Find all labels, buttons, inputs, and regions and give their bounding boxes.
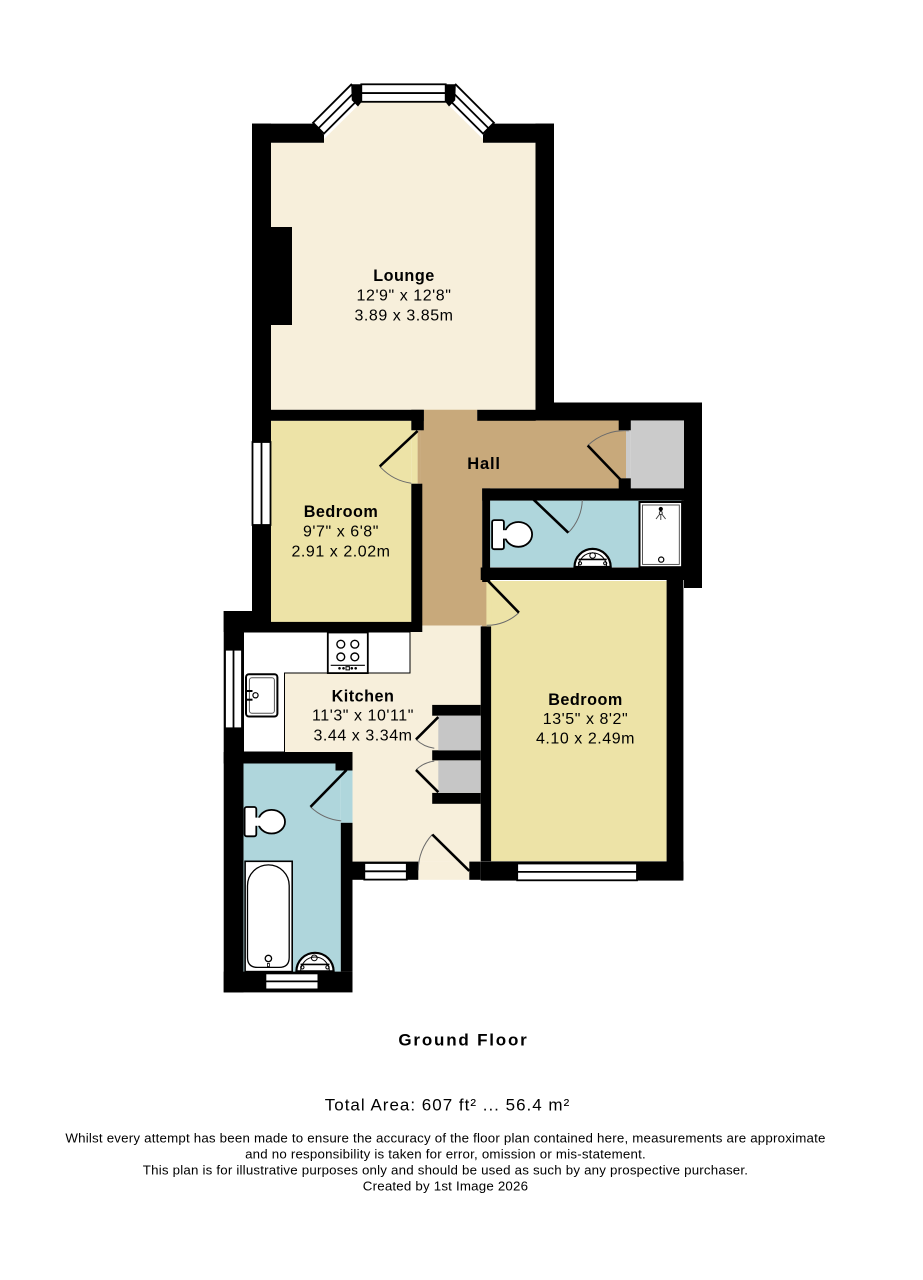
- svg-text:Ground Floor: Ground Floor: [398, 1031, 528, 1050]
- svg-text:Kitchen: Kitchen: [332, 688, 395, 706]
- svg-text:Bedroom: Bedroom: [548, 691, 623, 709]
- svg-text:9'7" x 6'8": 9'7" x 6'8": [303, 524, 379, 541]
- svg-text:This plan is for illustrative: This plan is for illustrative purposes o…: [143, 1163, 748, 1178]
- svg-text:Created by 1st Image 2026: Created by 1st Image 2026: [363, 1179, 528, 1194]
- svg-text:11'3" x 10'11": 11'3" x 10'11": [312, 708, 414, 725]
- svg-text:3.89 x 3.85m: 3.89 x 3.85m: [354, 308, 453, 325]
- svg-text:and no responsibility is taken: and no responsibility is taken for error…: [245, 1147, 646, 1162]
- svg-text:12'9" x 12'8": 12'9" x 12'8": [357, 288, 452, 305]
- svg-text:3.44 x 3.34m: 3.44 x 3.34m: [313, 728, 412, 745]
- svg-text:Bedroom: Bedroom: [304, 503, 379, 521]
- svg-text:2.91 x 2.02m: 2.91 x 2.02m: [291, 544, 390, 561]
- svg-text:Hall: Hall: [467, 455, 500, 473]
- svg-text:13'5" x 8'2": 13'5" x 8'2": [543, 711, 628, 728]
- svg-text:Whilst every attempt has been: Whilst every attempt has been made to en…: [65, 1131, 825, 1146]
- svg-text:Total Area: 607 ft² ... 56.4 m: Total Area: 607 ft² ... 56.4 m²: [325, 1096, 571, 1115]
- svg-text:4.10 x 2.49m: 4.10 x 2.49m: [536, 731, 635, 748]
- svg-text:Lounge: Lounge: [373, 267, 434, 285]
